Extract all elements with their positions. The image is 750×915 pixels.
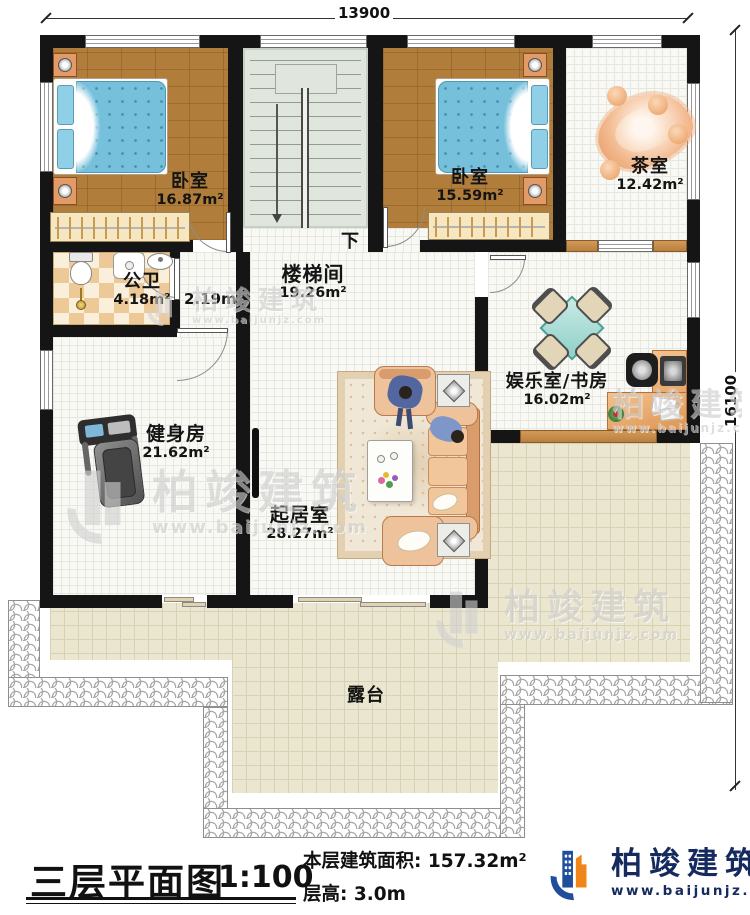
terrace-railing	[203, 808, 523, 838]
room-label-study: 娱乐室/书房 16.02m²	[487, 372, 627, 408]
wall	[687, 35, 700, 83]
flower	[392, 475, 398, 481]
armchair	[382, 516, 444, 566]
wall	[40, 595, 162, 608]
wall	[40, 172, 53, 350]
cup	[377, 455, 385, 463]
plant	[608, 406, 624, 422]
tea-stool	[607, 86, 627, 106]
room-area: 4.18m²	[92, 292, 192, 308]
brand-block: 柏竣建筑 www.baijunjz.com	[543, 845, 750, 903]
window	[407, 35, 515, 48]
floor-plan-canvas: 13900 16100	[0, 0, 750, 915]
cabinet-half-wall	[653, 240, 687, 252]
room-name: 楼梯间	[253, 263, 373, 285]
brand-name: 柏竣建筑	[611, 849, 750, 880]
wall	[687, 200, 700, 262]
treadmill-handle	[82, 442, 92, 476]
nightstand	[53, 177, 77, 205]
sliding-door	[298, 597, 362, 602]
person-head	[451, 430, 464, 443]
window	[40, 350, 53, 410]
room-label-stair-hall: 楼梯间 19.26m²	[253, 263, 373, 302]
door-leaf	[226, 212, 231, 253]
sliding-door	[360, 602, 426, 607]
wall	[475, 240, 488, 252]
cabinet-half-wall	[566, 240, 598, 252]
treadmill-screen	[85, 424, 104, 438]
table-lamp	[443, 530, 466, 553]
room-label-bathroom: 公卫 4.18m²	[92, 272, 192, 308]
wall	[40, 325, 177, 337]
room-name: 卧室	[130, 172, 250, 192]
room-label-bedroom1: 卧室 16.87m²	[130, 172, 250, 208]
room-area: 28.27m²	[240, 526, 360, 542]
monitor-screen	[664, 361, 682, 381]
room-name: 茶室	[590, 157, 710, 177]
hangers	[435, 217, 543, 237]
dimension-label-height: 16100	[722, 372, 740, 430]
door-leaf	[383, 207, 388, 248]
person-head	[399, 386, 412, 399]
side-table	[437, 523, 470, 557]
terrace-railing	[8, 677, 228, 707]
room-label-terrace: 露台	[336, 686, 396, 706]
flower	[383, 472, 389, 478]
brand-url: www.baijunjz.com	[611, 885, 750, 899]
nightstand	[53, 53, 77, 77]
floor-drain	[76, 300, 86, 310]
room-area: 19.26m²	[253, 285, 373, 301]
wall	[687, 318, 700, 443]
floor-height-stat: 层高: 3.0m	[303, 880, 406, 906]
dimension-label-width: 13900	[335, 4, 393, 22]
title-underline	[26, 903, 296, 904]
wardrobe	[50, 212, 190, 242]
wall	[553, 35, 566, 252]
tea-stool	[648, 95, 668, 115]
bed	[53, 78, 168, 175]
room-label-bedroom2: 卧室 15.59m²	[410, 168, 530, 204]
room-name: 公卫	[92, 272, 192, 292]
office-chair-seat	[632, 360, 652, 380]
wall	[40, 35, 53, 82]
wardrobe	[428, 212, 550, 240]
cup	[390, 452, 398, 460]
faucet	[158, 257, 163, 262]
room-area: 16.02m²	[487, 392, 627, 408]
sliding-door	[182, 602, 206, 607]
pillow	[531, 85, 548, 125]
room-name: 娱乐室/书房	[487, 372, 627, 392]
toilet-bowl	[70, 261, 92, 285]
stair-down-label: 下	[341, 227, 359, 253]
lamp	[58, 184, 72, 198]
window	[260, 35, 367, 48]
pillow	[531, 129, 548, 169]
window	[592, 35, 662, 48]
tv	[252, 428, 259, 498]
room-name: 露台	[336, 686, 396, 706]
room-name: 卧室	[410, 168, 530, 188]
room-area: 15.59m²	[410, 188, 530, 204]
sofa-cushion	[428, 457, 468, 486]
bed-sheet-fold	[504, 81, 530, 173]
room-area: 21.62m²	[116, 445, 236, 461]
coffee-table	[367, 440, 413, 502]
terrace-railing	[700, 443, 733, 703]
wall	[420, 240, 566, 252]
terrace-railing	[500, 675, 733, 705]
room-label-living: 起居室 28.27m²	[240, 505, 360, 543]
stair-arrow-down	[272, 214, 282, 223]
door-leaf	[177, 328, 228, 333]
wall	[40, 410, 53, 608]
window	[85, 35, 200, 48]
floor-area-stat: 本层建筑面积: 157.32m²	[303, 847, 527, 873]
room-area: 12.42m²	[590, 177, 710, 193]
room-area: 16.87m²	[130, 192, 250, 208]
hangers	[57, 217, 183, 239]
pillow	[57, 129, 74, 169]
room-name: 起居室	[240, 505, 360, 526]
room-label-tea-room: 茶室 12.42m²	[590, 157, 710, 193]
sink	[147, 253, 173, 270]
shower-drain	[125, 261, 134, 270]
window	[687, 262, 700, 318]
tea-stool	[668, 124, 688, 144]
room-label-gym: 健身房 21.62m²	[116, 424, 236, 462]
terrace-railing	[500, 703, 525, 838]
plan-scale: 1:100	[218, 860, 314, 895]
stair-center-rail	[301, 88, 309, 228]
flower	[378, 477, 385, 484]
papers	[659, 407, 680, 421]
office-chair	[626, 353, 658, 387]
plant-flower	[613, 411, 619, 417]
window	[40, 82, 53, 172]
room-name: 健身房	[116, 424, 236, 445]
door-leaf	[490, 255, 526, 260]
bed	[435, 78, 550, 175]
lamp	[528, 184, 542, 198]
title-underline	[26, 897, 296, 900]
window-sill	[520, 430, 657, 443]
lamp	[528, 58, 542, 72]
monitor	[660, 356, 686, 386]
wall	[657, 430, 700, 443]
room-label-closet-area: 2.19m²	[184, 290, 243, 308]
wall	[207, 595, 293, 608]
stair-direction-line	[276, 104, 278, 216]
bed-sheet-fold	[74, 81, 100, 173]
flower	[386, 481, 393, 488]
wall	[368, 35, 383, 252]
side-table	[437, 374, 470, 407]
throw-pillow	[395, 527, 433, 555]
pillow	[57, 85, 74, 125]
brand-logo-icon	[543, 845, 601, 903]
door-arc	[188, 212, 228, 252]
tea-table-top	[609, 100, 677, 158]
nightstand	[523, 53, 547, 77]
lamp	[58, 58, 72, 72]
table-lamp	[443, 380, 466, 403]
window	[598, 240, 653, 252]
